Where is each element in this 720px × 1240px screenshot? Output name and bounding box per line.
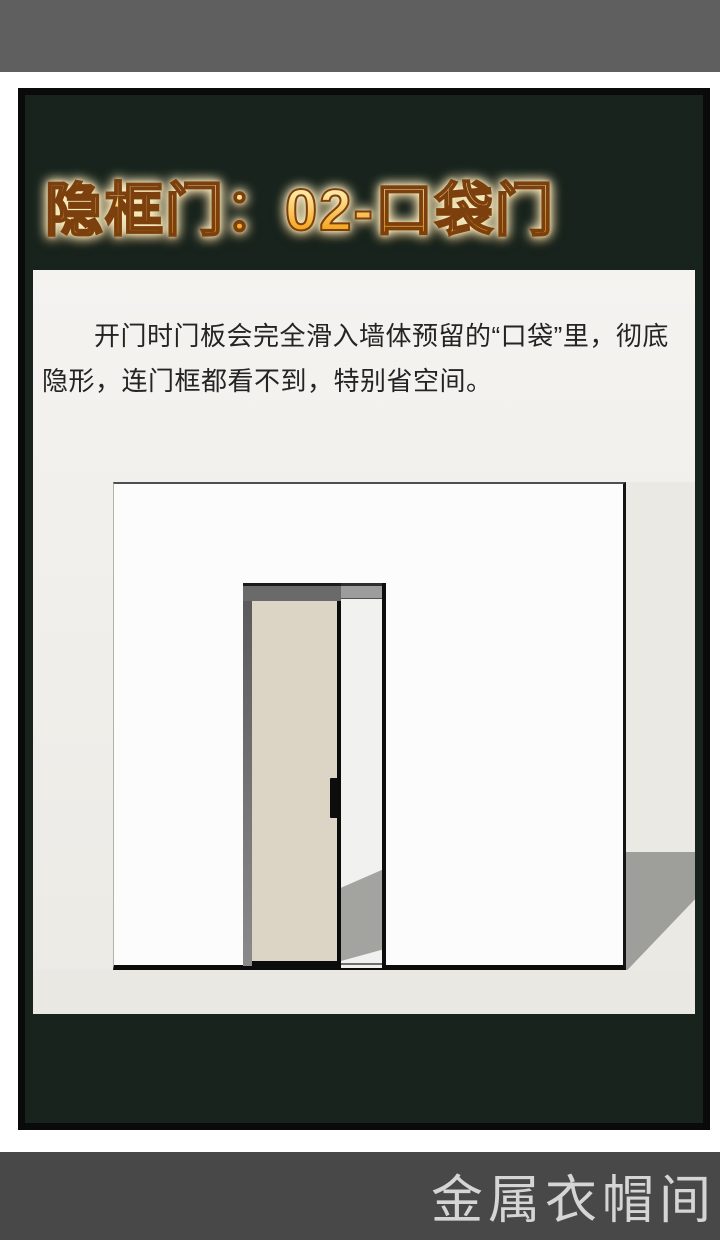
floor-strip <box>33 970 695 1014</box>
watermark-text: 金属衣帽间 <box>431 1158 716 1233</box>
doorway-open-gap <box>341 583 386 968</box>
doorway-header-reveal <box>341 586 382 599</box>
door-handle-icon <box>330 778 338 818</box>
page-title: 隐框门：02-口袋门 <box>45 163 555 247</box>
door-header-frame <box>243 583 341 601</box>
description-text: 开门时门板会完全滑入墙体预留的“口袋”里，彻底隐形，连门框都看不到，特别省空间。 <box>42 314 692 404</box>
doorway-floor-line <box>341 963 382 965</box>
door-jamb-left <box>243 583 252 966</box>
doorway-floor-shadow <box>341 868 382 962</box>
top-letterbox-bar <box>0 0 720 72</box>
pocket-door-panel <box>252 601 341 965</box>
